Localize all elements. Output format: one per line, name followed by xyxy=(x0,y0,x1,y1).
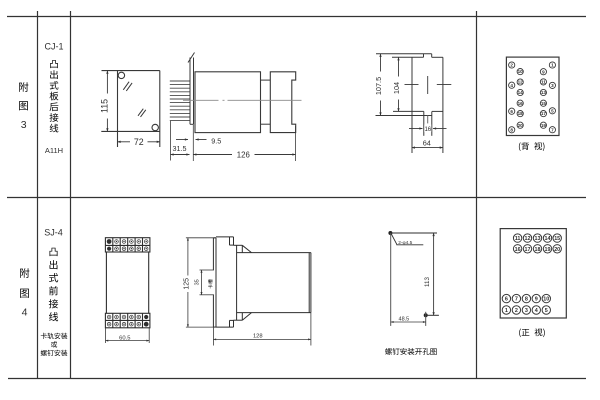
svg-text:20: 20 xyxy=(518,123,524,128)
svg-text:7: 7 xyxy=(551,127,554,132)
svg-text:11: 11 xyxy=(515,236,521,242)
svg-text:115: 115 xyxy=(100,99,110,113)
svg-text:35: 35 xyxy=(195,279,201,285)
svg-text:16: 16 xyxy=(515,247,521,253)
svg-text:17: 17 xyxy=(525,247,531,253)
svg-text:10: 10 xyxy=(518,69,524,74)
svg-text:8: 8 xyxy=(525,297,528,303)
svg-text:18: 18 xyxy=(518,111,524,116)
svg-text:2: 2 xyxy=(510,63,513,68)
svg-text:12: 12 xyxy=(525,236,531,242)
svg-text:125: 125 xyxy=(183,278,190,290)
svg-text:113: 113 xyxy=(424,277,431,287)
svg-text:5: 5 xyxy=(545,308,548,314)
svg-text:6: 6 xyxy=(510,109,513,114)
svg-text:19: 19 xyxy=(541,123,547,128)
svg-text:14: 14 xyxy=(545,236,551,242)
svg-text:13: 13 xyxy=(541,90,547,95)
svg-text:15: 15 xyxy=(554,236,560,242)
svg-text:11: 11 xyxy=(541,80,546,85)
svg-text:31.5: 31.5 xyxy=(173,144,187,153)
svg-text:16: 16 xyxy=(518,101,524,106)
svg-text:7: 7 xyxy=(515,297,518,303)
svg-text:15: 15 xyxy=(541,101,547,106)
svg-text:1: 1 xyxy=(551,63,554,68)
svg-text:20: 20 xyxy=(554,247,560,253)
svg-text:3: 3 xyxy=(525,308,528,314)
svg-text:17: 17 xyxy=(541,111,547,116)
svg-text:10: 10 xyxy=(543,297,549,303)
svg-text:4: 4 xyxy=(22,307,28,319)
svg-text:18: 18 xyxy=(535,247,541,253)
svg-text:14: 14 xyxy=(518,90,524,95)
svg-text:9: 9 xyxy=(542,69,545,74)
svg-text:64: 64 xyxy=(423,139,431,148)
svg-text:16: 16 xyxy=(424,127,431,133)
svg-text:9: 9 xyxy=(535,297,538,303)
svg-text:A11H: A11H xyxy=(45,146,63,155)
svg-text:60.5: 60.5 xyxy=(119,335,130,341)
svg-text:104: 104 xyxy=(392,82,401,94)
svg-text:6: 6 xyxy=(505,297,508,303)
svg-text:72: 72 xyxy=(134,137,144,147)
svg-text:13: 13 xyxy=(535,236,541,242)
svg-text:8: 8 xyxy=(510,127,513,132)
svg-text:19: 19 xyxy=(545,247,551,253)
svg-text:12: 12 xyxy=(518,80,524,85)
svg-text:SJ-4: SJ-4 xyxy=(44,228,63,238)
svg-text:9.5: 9.5 xyxy=(211,136,221,145)
svg-text:3: 3 xyxy=(21,119,27,131)
svg-text:128: 128 xyxy=(253,334,263,340)
svg-text:5: 5 xyxy=(551,108,554,113)
svg-text:4: 4 xyxy=(535,308,538,314)
svg-text:48.5: 48.5 xyxy=(399,317,410,323)
svg-text:CJ-1: CJ-1 xyxy=(44,42,63,52)
svg-text:1: 1 xyxy=(505,308,508,314)
svg-text:3: 3 xyxy=(551,83,554,88)
svg-text:107.5: 107.5 xyxy=(374,77,383,95)
svg-text:126: 126 xyxy=(237,151,250,160)
svg-text:4: 4 xyxy=(510,83,513,88)
svg-text:2: 2 xyxy=(515,308,518,314)
svg-text:2-φ4.5: 2-φ4.5 xyxy=(398,240,412,246)
